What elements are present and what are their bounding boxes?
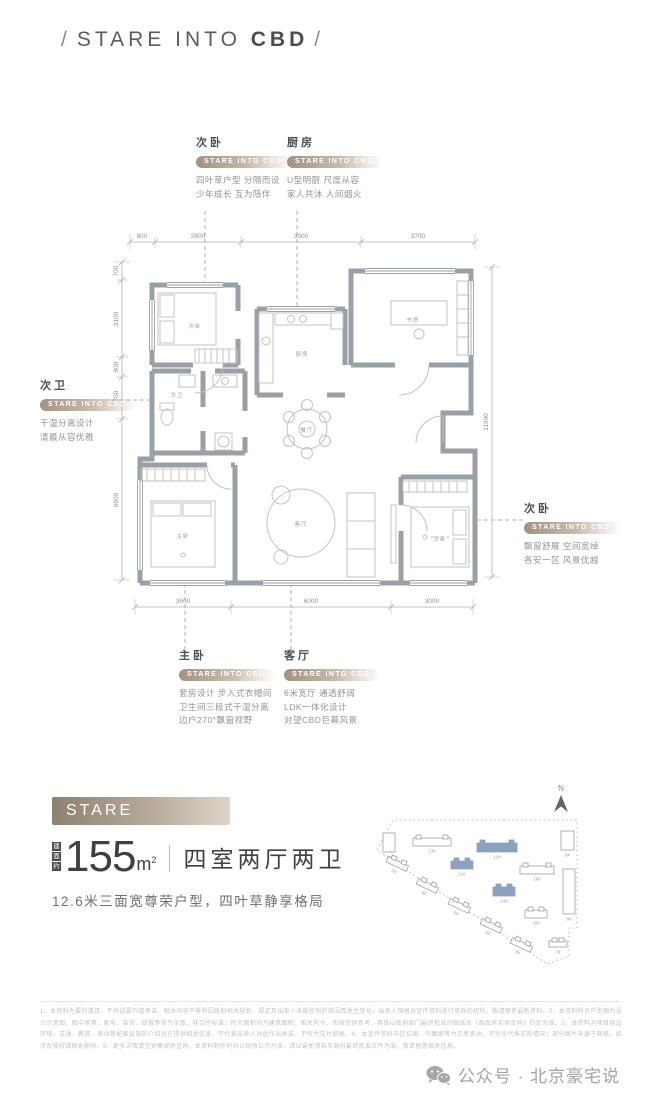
svg-text:12#: 12# bbox=[493, 855, 501, 860]
dimension-labels: 8002800390037003600600030007003100800170… bbox=[113, 233, 490, 605]
callout-badge: STARE INTO CBD bbox=[179, 669, 275, 681]
callout-text: 四叶草户型 分隔而设少年成长 互为陪伴 bbox=[196, 174, 292, 201]
header-slash-right: / bbox=[314, 28, 324, 51]
site-building: 13# bbox=[413, 835, 451, 854]
svg-text:次卧: 次卧 bbox=[188, 322, 201, 330]
svg-text:6#: 6# bbox=[515, 949, 522, 956]
svg-text:次卧: 次卧 bbox=[433, 535, 446, 543]
site-plan: N 1#13#12#9#11#10#8#14#15#2#3#4#5#6#7# bbox=[365, 778, 645, 983]
callout-bedroom-top: 次卧 STARE INTO CBD 四叶草户型 分隔而设少年成长 互为陪伴 bbox=[196, 134, 292, 201]
site-building: 7# bbox=[549, 938, 567, 955]
page: /STARE INTO CBD/ bbox=[0, 0, 660, 1103]
svg-text:800: 800 bbox=[137, 233, 148, 240]
callout-title: 客厅 bbox=[284, 647, 380, 663]
layout-text: 四室两厅两卫 bbox=[183, 840, 345, 874]
callout-title: 厨房 bbox=[287, 134, 383, 150]
walls bbox=[140, 271, 475, 583]
area-unit: m2 bbox=[136, 854, 156, 875]
north-label: N bbox=[558, 784, 564, 793]
svg-text:14#: 14# bbox=[500, 899, 508, 904]
callout-kitchen: 厨房 STARE INTO CBD U型明厨 尺度从容家人共沐 人间烟火 bbox=[287, 134, 383, 201]
callout-title: 次卧 bbox=[196, 134, 292, 150]
header-slash-left: / bbox=[61, 28, 71, 51]
disclaimer-text: 1、本资料为要约邀请，不构成要约或承诺，相关内容不排除因政府相关规划、规定及出卖… bbox=[40, 1007, 622, 1054]
callout-badge: STARE INTO CBD bbox=[284, 669, 380, 681]
callout-badge: STARE INTO CBD bbox=[524, 522, 620, 534]
svg-text:6000: 6000 bbox=[304, 598, 319, 605]
callout-text: 飘窗舒展 空间宽绰各安一区 风景优越 bbox=[524, 540, 620, 567]
svg-text:5#: 5# bbox=[485, 930, 492, 937]
callout-title: 次卧 bbox=[524, 500, 620, 516]
site-building: 11# bbox=[451, 858, 473, 877]
callout-bedroom-right: 次卧 STARE INTO CBD 飘窗舒展 空间宽绰各安一区 风景优越 bbox=[524, 500, 620, 567]
svg-text:书房: 书房 bbox=[406, 316, 419, 324]
svg-text:15#: 15# bbox=[532, 921, 540, 926]
svg-text:3000: 3000 bbox=[425, 598, 440, 605]
site-building: 15# bbox=[525, 907, 547, 926]
callout-title: 次卫 bbox=[40, 377, 136, 393]
svg-text:3#: 3# bbox=[421, 890, 428, 897]
site-building: 4# bbox=[445, 896, 472, 920]
site-building: 8# bbox=[563, 869, 575, 922]
site-building: 14# bbox=[493, 884, 515, 904]
site-building: 6# bbox=[507, 935, 534, 959]
page-header: /STARE INTO CBD/ bbox=[55, 28, 330, 52]
callout-badge: STARE INTO CBD bbox=[196, 156, 292, 168]
svg-text:11#: 11# bbox=[458, 872, 466, 877]
site-building: 12# bbox=[477, 840, 517, 860]
svg-text:厨房: 厨房 bbox=[295, 350, 308, 358]
divider bbox=[169, 845, 170, 872]
callout-text: 套房设计 步入式衣帽间卫生间三段式干湿分离边户270°飘窗视野 bbox=[179, 687, 275, 728]
callout-living: 客厅 STARE INTO CBD 6米宽厅 通透舒阔LDK一体化设计对望CBD… bbox=[284, 647, 380, 728]
footer: 公众号 · 北京豪宅说 bbox=[426, 1062, 620, 1087]
site-building: 3# bbox=[413, 876, 440, 900]
svg-text:主卧: 主卧 bbox=[176, 532, 189, 540]
callout-bath: 次卫 STARE INTO CBD 干湿分离设计清晨从容优雅 bbox=[40, 377, 136, 444]
svg-text:9#: 9# bbox=[565, 853, 571, 858]
site-buildings: 1#13#12#9#11#10#8#14#15#2#3#4#5#6#7# bbox=[383, 831, 575, 959]
callout-badge: STARE INTO CBD bbox=[40, 399, 136, 411]
svg-text:7#: 7# bbox=[555, 950, 561, 955]
description-text: 12.6米三面宽尊荣户型，四叶草静享格局 bbox=[52, 890, 324, 910]
summary-banner: STARE INTO CBD bbox=[52, 797, 230, 825]
svg-text:3100: 3100 bbox=[113, 311, 120, 326]
svg-text:10#: 10# bbox=[533, 877, 541, 882]
svg-text:次卫: 次卫 bbox=[170, 391, 183, 399]
area-row: 建面约 155 m2 四室两厅两卫 bbox=[52, 836, 345, 876]
callout-title: 主卧 bbox=[179, 647, 275, 663]
area-value: 155 bbox=[65, 839, 135, 876]
svg-text:4#: 4# bbox=[453, 910, 460, 917]
svg-text:3600: 3600 bbox=[176, 598, 191, 605]
svg-text:2#: 2# bbox=[391, 868, 398, 875]
svg-text:800: 800 bbox=[113, 361, 120, 372]
callout-master: 主卧 STARE INTO CBD 套房设计 步入式衣帽间卫生间三段式干湿分离边… bbox=[179, 647, 275, 728]
north-arrow-icon bbox=[554, 795, 568, 812]
svg-text:13#: 13# bbox=[428, 849, 436, 854]
svg-text:3700: 3700 bbox=[411, 233, 426, 240]
area-prefix: 建面约 bbox=[52, 842, 61, 871]
header-title-bold: CBD bbox=[251, 28, 309, 51]
wechat-icon bbox=[426, 1065, 451, 1085]
svg-text:2800: 2800 bbox=[191, 233, 206, 240]
svg-text:餐厅: 餐厅 bbox=[300, 426, 313, 434]
site-boundary bbox=[377, 820, 577, 964]
footer-text: 公众号 · 北京豪宅说 bbox=[458, 1062, 620, 1087]
svg-text:6600: 6600 bbox=[113, 492, 120, 507]
callout-text: 6米宽厅 通透舒阔LDK一体化设计对望CBD巨幕风景 bbox=[284, 687, 380, 728]
svg-text:3900: 3900 bbox=[294, 233, 309, 240]
callout-text: 干湿分离设计清晨从容优雅 bbox=[40, 417, 136, 444]
site-building: 10# bbox=[520, 863, 554, 882]
header-title: STARE INTO bbox=[77, 28, 241, 51]
callout-badge: STARE INTO CBD bbox=[287, 156, 383, 168]
divider-line bbox=[40, 1001, 620, 1002]
svg-text:11900: 11900 bbox=[483, 413, 490, 431]
svg-text:8#: 8# bbox=[566, 917, 572, 922]
svg-text:客厅: 客厅 bbox=[294, 520, 307, 528]
svg-text:700: 700 bbox=[113, 265, 120, 276]
site-building: 9# bbox=[561, 831, 574, 858]
room-labels: 次卧厨房书房次卫餐厅客厅主卧次卧 bbox=[170, 316, 446, 543]
callout-text: U型明厨 尺度从容家人共沐 人间烟火 bbox=[287, 174, 383, 201]
